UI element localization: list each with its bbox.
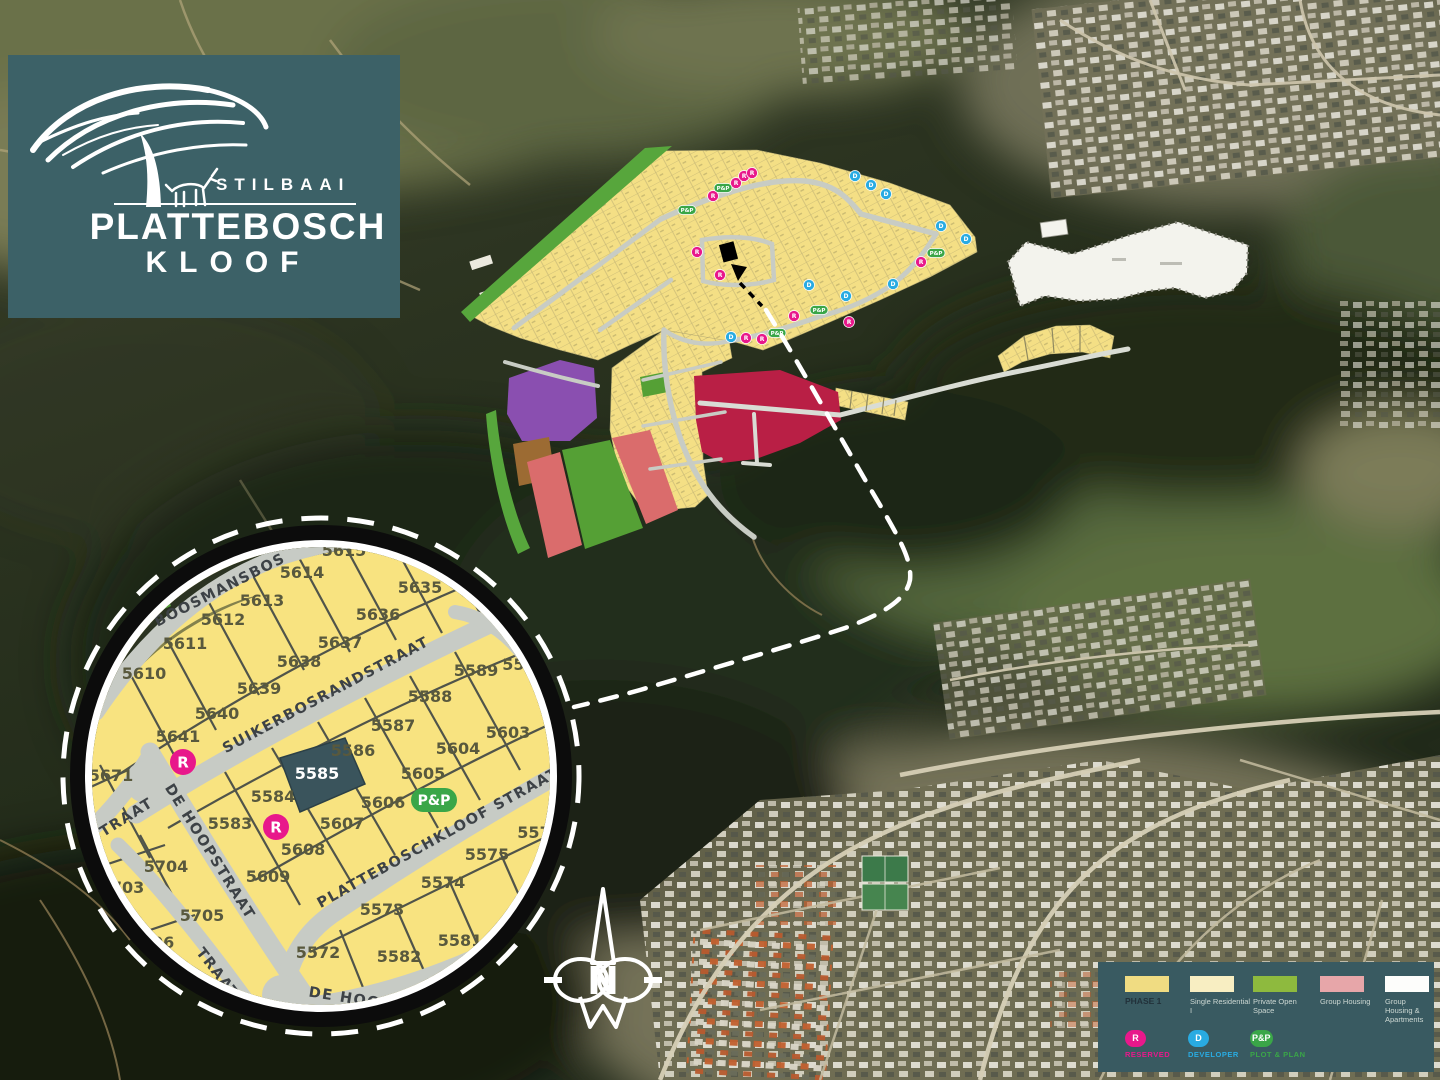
legend-marker-developer: D DEVELOPER [1188,1028,1239,1059]
mini-marker-label: D [807,282,812,289]
plot-and-plan-marker-label: P&P [418,793,451,809]
plot-and-plan-badge-icon: P&P [1250,1030,1273,1047]
mini-marker-label: R [760,336,765,343]
mini-marker-label: D [729,334,734,341]
mini-marker-label: R [847,319,852,326]
inset-plot-label: 5574 [421,873,466,892]
legend-marker-plot-and-plan: P&P PLOT & PLAN [1250,1028,1306,1059]
mini-marker-label: P&P [717,186,730,192]
mini-marker-label: D [939,223,944,230]
block-purple [507,360,597,441]
legend-swatch-group-housing [1320,976,1364,992]
logo-name-line1: PLATTEBOSCH [88,206,388,248]
inset-plot-label: 5614 [280,563,325,582]
legend-panel: PHASE 1 Single Residential I Private Ope… [1098,962,1434,1072]
inset-plot-label: 5572 [296,943,341,962]
legend-marker-label: PLOT & PLAN [1250,1050,1306,1059]
mini-marker-label: R [718,272,723,279]
inset-plot-label: 5637 [318,633,363,652]
compass-n-letter: N [587,959,619,1003]
mini-marker-label: R [750,170,755,177]
inset-plot-label: 5573 [360,900,405,919]
inset-plot-label: 5705 [180,906,225,925]
inset-plot-label: 5587 [371,716,416,735]
inset-plot-label: 5608 [281,840,326,859]
inset-plot-label: 5575 [465,845,510,864]
mini-marker-label: P&P [930,251,943,257]
logo-location: STILBAAI [216,175,350,195]
legend-marker-label: RESERVED [1125,1050,1170,1059]
inset-plot-label: 5588 [408,687,453,706]
inset-plot-label: 5612 [201,610,246,629]
mini-marker-label: R [919,259,924,266]
mini-marker-label: P&P [813,308,826,314]
inset-plot-label: 5606 [361,793,406,812]
inset-plot-label: 5603 [486,723,531,742]
reserved-marker-label: R [270,819,282,837]
mini-marker-label: D [891,281,896,288]
inset-plot-label: 5584 [251,787,296,806]
legend-label: Group Housing [1320,997,1382,1006]
inset-plot-label: 5607 [320,814,365,833]
legend-item-phase1: PHASE 1 [1125,976,1187,1006]
map-poster: RRRRP&PP&PRRDRRP&PRP&PDDDDDDDRP&PDR [0,0,1440,1080]
legend-marker-label: DEVELOPER [1188,1050,1239,1059]
inset-plot-label: 5586 [331,741,376,760]
inset-plot-label: 5639 [237,679,282,698]
inset-plot-label: 5609 [246,867,291,886]
suburb-top-center [797,0,1017,85]
mini-marker-label: R [695,249,700,256]
mini-marker-label: R [742,173,747,180]
legend-swatch-apartments [1385,976,1429,992]
inset-plot-label: 5611 [163,634,208,653]
legend-item-single-residential: Single Residential I [1190,976,1252,1015]
inset-plot-label: 5610 [122,664,167,683]
inset-plot-label: 5613 [240,591,285,610]
legend-label: Private Open Space [1253,997,1315,1015]
legend-label: Group Housing & Apartments [1385,997,1431,1024]
mini-marker-label: D [964,236,969,243]
mini-marker-label: R [711,193,716,200]
inset-plot-label: 5585 [295,764,340,783]
reserved-badge-icon: R [1125,1030,1146,1047]
inset-plot-label: 5582 [377,947,422,966]
inset-plot-label: 5604 [436,739,481,758]
mini-marker-label: D [869,182,874,189]
mini-marker-label: R [792,313,797,320]
inset-plot-label: 5704 [144,857,189,876]
deer-icon [166,169,217,206]
mini-marker-label: R [734,180,739,187]
inset-plot-label: 5636 [356,605,401,624]
legend-item-open-space: Private Open Space [1253,976,1315,1015]
developer-badge-icon: D [1188,1030,1209,1047]
reserved-marker-label: R [177,754,189,772]
logo-panel: STILBAAI PLATTEBOSCH KLOOF [8,55,400,318]
mini-marker-label: R [744,335,749,342]
inset-plot-label: 5589 [454,661,499,680]
legend-item-group-housing: Group Housing [1320,976,1382,1006]
legend-swatch-open-space [1253,976,1297,992]
inset-plot-label: 5605 [401,764,446,783]
legend-swatch-phase1 [1125,976,1169,992]
legend-swatch-single-residential [1190,976,1234,992]
mini-marker-label: P&P [681,208,694,214]
inset-plot-label: 5640 [195,704,240,723]
survey-area [1008,219,1248,306]
legend-item-apartments: Group Housing & Apartments [1385,976,1431,1024]
legend-marker-reserved: R RESERVED [1125,1028,1170,1059]
legend-label: Single Residential I [1190,997,1252,1015]
logo-rule [114,203,356,205]
inset-plot-label: 5641 [156,727,201,746]
logo-name-line2: KLOOF [88,246,368,280]
mini-marker-label: D [844,293,849,300]
inset-plot-label: 5638 [277,652,322,671]
mini-marker-label: D [853,173,858,180]
suburb-right-edge [1340,300,1440,430]
mini-marker-label: D [884,191,889,198]
inset-plot-label: 5583 [208,814,253,833]
inset-plot-label: 5671 [89,766,134,785]
inset-plot-label: 5635 [398,578,443,597]
legend-label: PHASE 1 [1125,997,1187,1006]
